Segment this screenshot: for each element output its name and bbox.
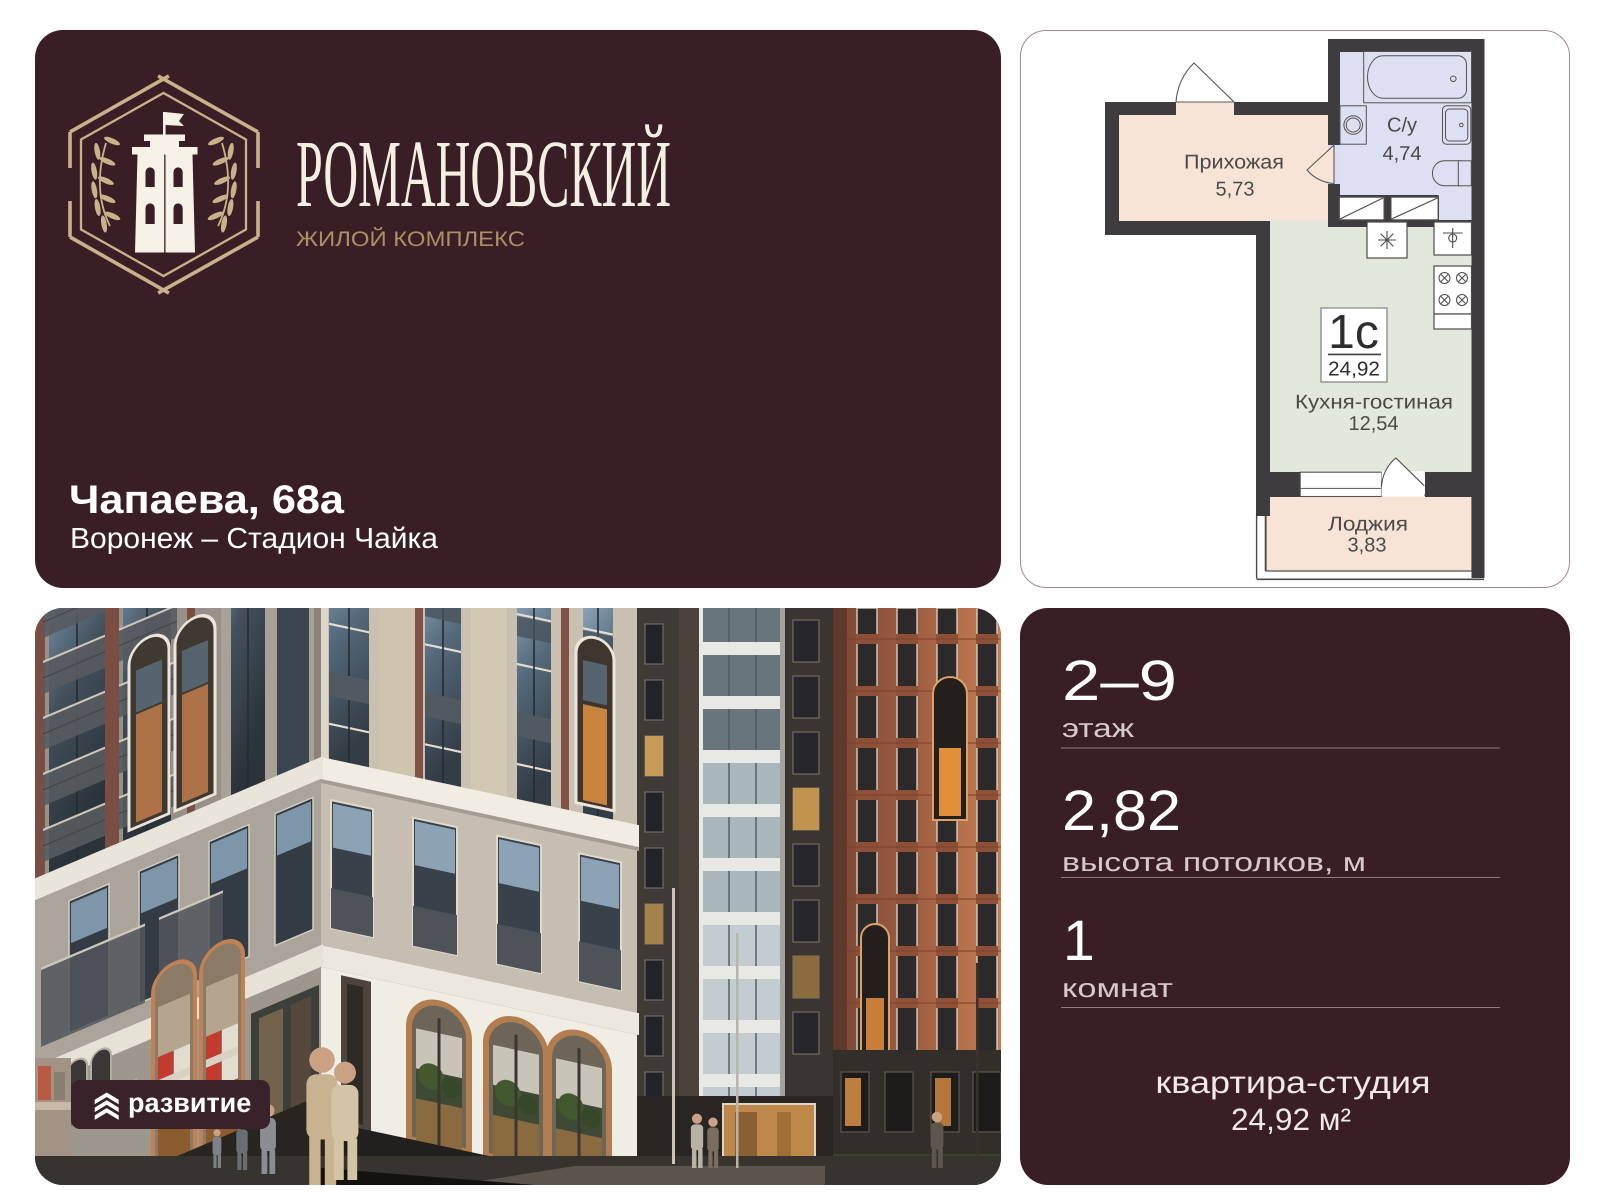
svg-text:12,54: 12,54 (1348, 413, 1398, 435)
svg-text:3,83: 3,83 (1348, 535, 1387, 557)
svg-text:С/у: С/у (1387, 115, 1417, 137)
svg-text:Прихожая: Прихожая (1184, 152, 1284, 174)
svg-text:ЖИЛОЙ КОМПЛЕКС: ЖИЛОЙ КОМПЛЕКС (296, 227, 525, 251)
svg-text:Кухня-гостиная: Кухня-гостиная (1295, 391, 1453, 413)
svg-text:развитие: развитие (128, 1088, 251, 1118)
svg-text:Чапаева, 68а: Чапаева, 68а (69, 478, 345, 522)
svg-text:РОМАНОВСКИЙ: РОМАНОВСКИЙ (296, 120, 671, 227)
svg-text:24,92 м²: 24,92 м² (1231, 1102, 1351, 1137)
svg-text:24,92: 24,92 (1328, 358, 1380, 380)
svg-text:5,73: 5,73 (1216, 179, 1255, 201)
svg-text:Лоджия: Лоджия (1328, 513, 1408, 535)
svg-text:1с: 1с (1328, 306, 1379, 359)
svg-text:2,82: 2,82 (1062, 779, 1181, 843)
svg-text:этаж: этаж (1062, 713, 1135, 743)
svg-text:комнат: комнат (1062, 973, 1173, 1003)
svg-text:1: 1 (1063, 909, 1095, 973)
svg-text:2–9: 2–9 (1062, 649, 1177, 713)
svg-text:Воронеж – Стадион Чайка: Воронеж – Стадион Чайка (70, 523, 439, 555)
svg-text:квартира-студия: квартира-студия (1156, 1065, 1431, 1100)
svg-text:высота потолков, м: высота потолков, м (1062, 847, 1366, 877)
svg-text:4,74: 4,74 (1383, 143, 1422, 165)
